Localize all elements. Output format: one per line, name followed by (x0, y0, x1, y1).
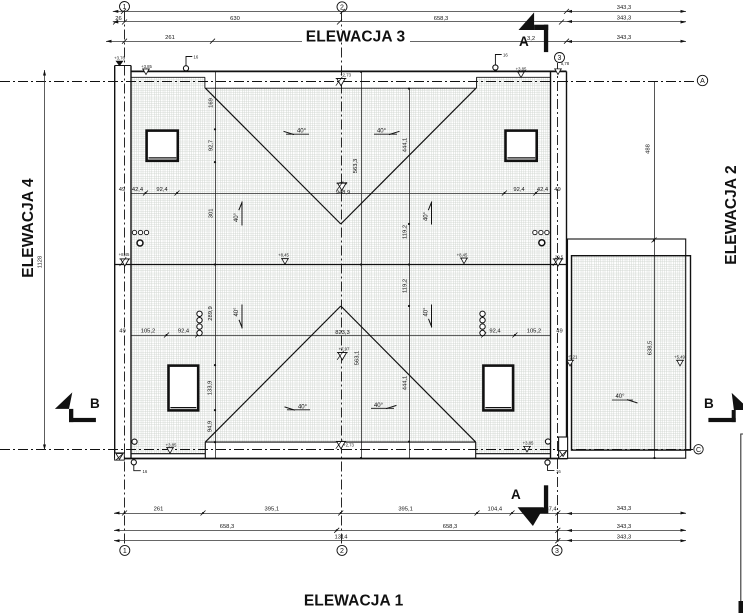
svg-text:16: 16 (503, 53, 508, 58)
svg-text:+3,76: +3,76 (114, 56, 125, 61)
svg-text:630: 630 (230, 16, 240, 22)
svg-text:40°: 40° (424, 211, 430, 221)
svg-text:638,5: 638,5 (648, 341, 654, 356)
svg-text:40°: 40° (234, 307, 240, 317)
svg-text:+3,85: +3,85 (141, 64, 152, 69)
svg-text:301: 301 (209, 209, 215, 219)
svg-text:B: B (704, 396, 714, 411)
svg-text:A: A (511, 487, 521, 502)
svg-text:3,2: 3,2 (527, 36, 535, 42)
svg-text:169: 169 (209, 98, 215, 108)
svg-text:343,3: 343,3 (617, 16, 632, 22)
svg-text:+5,49: +5,49 (674, 355, 685, 360)
svg-text:+2,73: +2,73 (343, 443, 354, 448)
svg-text:488: 488 (646, 144, 652, 154)
svg-text:42,4: 42,4 (537, 187, 549, 193)
svg-text:42,4: 42,4 (132, 187, 144, 193)
svg-text:ELEWACJA 2: ELEWACJA 2 (723, 165, 740, 264)
svg-text:261: 261 (154, 507, 164, 513)
svg-text:C: C (696, 447, 701, 454)
svg-text:119,2: 119,2 (403, 225, 409, 239)
svg-text:133,9: 133,9 (208, 381, 214, 396)
svg-text:823,3: 823,3 (335, 330, 350, 336)
svg-text:26: 26 (115, 16, 121, 22)
svg-text:+3,85: +3,85 (516, 67, 527, 72)
svg-text:+8,45: +8,45 (457, 253, 468, 258)
svg-text:+8,45: +8,45 (119, 252, 130, 257)
svg-text:40°: 40° (374, 403, 384, 409)
svg-text:343,3: 343,3 (617, 506, 632, 512)
svg-text:343,3: 343,3 (617, 5, 632, 11)
svg-text:16: 16 (194, 55, 199, 60)
svg-text:ELEWACJA 4: ELEWACJA 4 (20, 178, 37, 278)
svg-text:16: 16 (556, 469, 561, 474)
svg-text:1314: 1314 (335, 535, 349, 541)
svg-text:+8,45: +8,45 (278, 253, 289, 258)
svg-text:94,9: 94,9 (208, 421, 214, 432)
svg-text:92,4: 92,4 (513, 187, 525, 193)
svg-text:1128: 1128 (38, 256, 44, 268)
svg-text:40°: 40° (615, 394, 625, 400)
svg-text:3: 3 (555, 548, 559, 555)
svg-text:92,4: 92,4 (156, 187, 168, 193)
svg-text:ELEWACJA 3: ELEWACJA 3 (306, 28, 406, 45)
svg-text:92,4: 92,4 (178, 329, 190, 335)
svg-text:1: 1 (123, 548, 127, 555)
svg-text:343,3: 343,3 (617, 535, 632, 541)
svg-text:395,1: 395,1 (265, 507, 280, 513)
svg-text:563,3: 563,3 (353, 159, 359, 174)
svg-text:658,3: 658,3 (443, 524, 458, 530)
svg-text:563,1: 563,1 (355, 351, 361, 366)
svg-text:104,4: 104,4 (488, 507, 503, 513)
svg-text:16: 16 (143, 469, 148, 474)
svg-text:105,2: 105,2 (141, 329, 156, 335)
svg-text:119,2: 119,2 (403, 279, 409, 293)
svg-text:2: 2 (340, 548, 344, 555)
svg-text:5,78: 5,78 (561, 61, 570, 66)
svg-text:444,1: 444,1 (403, 376, 409, 391)
svg-text:343,3: 343,3 (617, 35, 632, 41)
svg-text:B: B (90, 396, 100, 411)
svg-text:40°: 40° (298, 404, 308, 410)
svg-text:343,3: 343,3 (617, 524, 632, 530)
svg-text:658,3: 658,3 (220, 524, 235, 530)
svg-text:+3,85: +3,85 (166, 443, 177, 448)
svg-text:40°: 40° (234, 212, 240, 222)
svg-text:A: A (700, 78, 705, 85)
svg-text:+3,85: +3,85 (523, 441, 534, 446)
svg-text:92,4: 92,4 (489, 329, 501, 335)
svg-text:395,1: 395,1 (398, 507, 413, 513)
svg-text:40°: 40° (377, 129, 387, 135)
svg-text:105,2: 105,2 (527, 329, 542, 335)
svg-text:ELEWACJA 1: ELEWACJA 1 (304, 593, 404, 610)
svg-text:289,9: 289,9 (208, 306, 214, 321)
svg-text:+7,97: +7,97 (339, 347, 350, 352)
svg-text:40°: 40° (424, 307, 430, 317)
svg-text:+5,21: +5,21 (567, 355, 578, 360)
svg-text:92,7: 92,7 (209, 140, 215, 151)
svg-text:658,3: 658,3 (434, 16, 449, 22)
svg-text:444,1: 444,1 (403, 138, 409, 153)
svg-text:261: 261 (165, 35, 175, 41)
svg-text:948,9: 948,9 (336, 190, 351, 196)
svg-text:40°: 40° (297, 129, 307, 135)
